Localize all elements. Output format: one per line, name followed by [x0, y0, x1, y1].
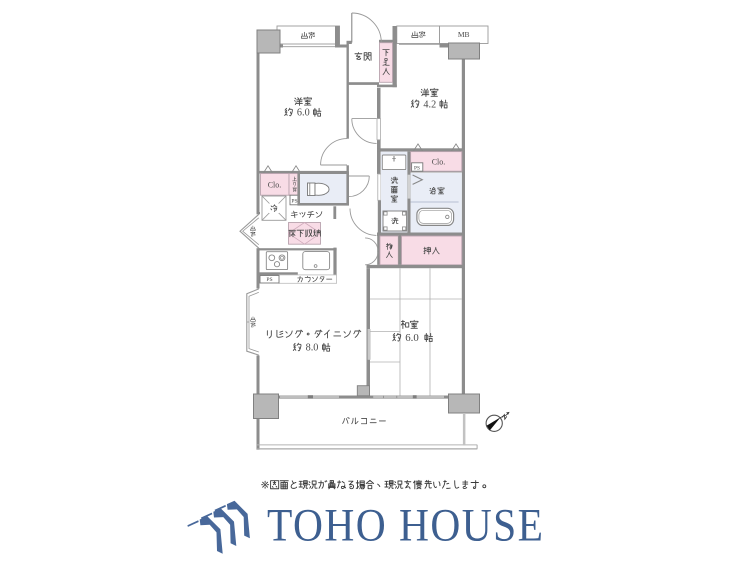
svg-text:6.0: 6.0: [405, 332, 419, 344]
svg-text:TOHO HOUSE: TOHO HOUSE: [267, 499, 543, 551]
svg-text:8.0: 8.0: [306, 343, 319, 354]
svg-text:MB: MB: [458, 30, 470, 39]
svg-text:Clo.: Clo.: [268, 180, 282, 189]
svg-text:4.2: 4.2: [423, 99, 436, 110]
svg-text:6.0: 6.0: [297, 108, 310, 119]
svg-text:PS: PS: [291, 198, 297, 204]
svg-text:Clo.: Clo.: [432, 158, 446, 167]
svg-text:PS: PS: [266, 277, 272, 283]
svg-text:PS: PS: [414, 165, 420, 171]
